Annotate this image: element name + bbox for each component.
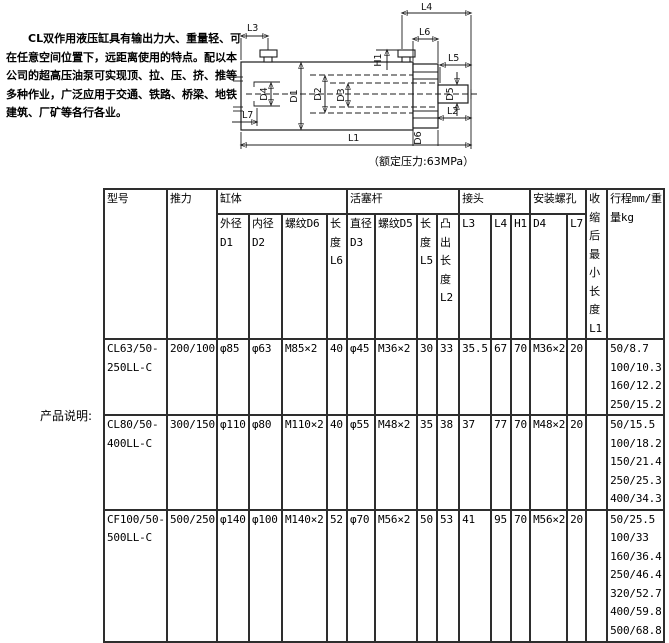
- oil-port-left: [260, 50, 277, 62]
- cell-l3: 35.5: [459, 339, 491, 415]
- cell-h1: 70: [511, 510, 530, 642]
- cell-model: CL80/50-400LL-C: [104, 415, 167, 510]
- cell-l1: [586, 415, 607, 510]
- cell-l2: 33: [437, 339, 459, 415]
- dim-label-l7: L7: [242, 110, 253, 121]
- cell-d3: φ55: [347, 415, 375, 510]
- cell-thread-d5: M56×2: [375, 510, 417, 642]
- gland-collar: [413, 64, 438, 128]
- cell-l6: 52: [327, 510, 347, 642]
- product-description-label: 产品说明:: [40, 407, 92, 424]
- cell-d4: M36×2: [530, 339, 567, 415]
- cell-stroke-weight: 50/8.7 100/10.3 160/12.2 250/15.2: [607, 339, 664, 415]
- cell-d4: M56×2: [530, 510, 567, 642]
- cell-thread-d5: M48×2: [375, 415, 417, 510]
- rated-pressure-note: （额定压力:63MPa）: [368, 153, 474, 169]
- cell-stroke-weight: 50/25.5 100/33 160/36.4 250/46.4 320/52.…: [607, 510, 664, 642]
- cell-thread-d6: M140×2: [282, 510, 327, 642]
- cell-l7: 20: [567, 339, 586, 415]
- oil-port-right: [398, 50, 415, 62]
- header-min-length: 收缩后最小长度L1: [586, 189, 607, 339]
- header-group-mount-holes: 安装螺孔: [530, 189, 586, 214]
- cell-d1: φ140: [217, 510, 249, 642]
- dim-label-d1: D1: [289, 89, 300, 102]
- cell-l3: 41: [459, 510, 491, 642]
- cell-d2: φ63: [249, 339, 282, 415]
- cell-stroke-weight: 50/15.5 100/18.2 150/21.4 250/25.3 400/3…: [607, 415, 664, 510]
- cell-l5: 50: [417, 510, 437, 642]
- dim-label-d4: D4: [259, 87, 270, 100]
- cell-l3: 37: [459, 415, 491, 510]
- cell-l4: 67: [491, 339, 511, 415]
- cell-l7: 20: [567, 510, 586, 642]
- cell-l6: 40: [327, 339, 347, 415]
- header-stroke-weight: 行程mm/重量kg: [607, 189, 664, 339]
- header-d4: D4: [530, 214, 567, 339]
- cell-l4: 77: [491, 415, 511, 510]
- cell-d1: φ85: [217, 339, 249, 415]
- cylinder-technical-drawing: L3 L4 L6 L5 L2 L1 L7 H1 D1 D2 D3 D4 D5 D…: [0, 0, 669, 186]
- dim-label-d5: D5: [445, 87, 456, 100]
- header-l7: L7: [567, 214, 586, 339]
- cell-thrust: 200/100: [167, 339, 217, 415]
- cell-d4: M48×2: [530, 415, 567, 510]
- cell-model: CF100/50-500LL-C: [104, 510, 167, 642]
- header-h1: H1: [511, 214, 530, 339]
- cell-l5: 35: [417, 415, 437, 510]
- cell-l4: 95: [491, 510, 511, 642]
- cell-l2: 53: [437, 510, 459, 642]
- dim-label-l3: L3: [247, 23, 258, 34]
- header-group-cylinder: 缸体: [217, 189, 347, 214]
- cell-thrust: 300/150: [167, 415, 217, 510]
- dim-label-d2: D2: [313, 87, 324, 100]
- table-row: CL80/50-400LL-C 300/150 φ110 φ80 M110×2 …: [104, 415, 664, 510]
- header-length-l6: 长度L6: [327, 214, 347, 339]
- header-length-l5: 长度L5: [417, 214, 437, 339]
- header-model: 型号: [104, 189, 167, 339]
- dim-label-d6: D6: [413, 131, 424, 144]
- table-row: CL63/50-250LL-C 200/100 φ85 φ63 M85×2 40…: [104, 339, 664, 415]
- table-row: CF100/50-500LL-C 500/250 φ140 φ100 M140×…: [104, 510, 664, 642]
- cell-l2: 38: [437, 415, 459, 510]
- cell-d3: φ45: [347, 339, 375, 415]
- dim-label-d3: D3: [336, 88, 347, 101]
- cell-l1: [586, 339, 607, 415]
- cell-l7: 20: [567, 415, 586, 510]
- cell-d2: φ100: [249, 510, 282, 642]
- cell-l1: [586, 510, 607, 642]
- dim-label-l6: L6: [419, 27, 430, 38]
- cell-model: CL63/50-250LL-C: [104, 339, 167, 415]
- dim-label-h1: H1: [373, 53, 384, 66]
- cell-h1: 70: [511, 415, 530, 510]
- cell-l6: 40: [327, 415, 347, 510]
- dim-label-l1: L1: [348, 133, 359, 144]
- dim-label-l4: L4: [421, 2, 432, 13]
- header-group-joint: 接头: [459, 189, 530, 214]
- cell-thread-d6: M110×2: [282, 415, 327, 510]
- cell-d3: φ70: [347, 510, 375, 642]
- header-outer-dia: 外径D1: [217, 214, 249, 339]
- cell-thread-d6: M85×2: [282, 339, 327, 415]
- header-thread-d6: 螺纹D6: [282, 214, 327, 339]
- cell-thread-d5: M36×2: [375, 339, 417, 415]
- dim-label-l2: L2: [447, 106, 458, 117]
- cell-l5: 30: [417, 339, 437, 415]
- cell-d2: φ80: [249, 415, 282, 510]
- header-thrust: 推力: [167, 189, 217, 339]
- spec-table: 型号 推力 缸体 活塞杆 接头 安装螺孔 收缩后最小长度L1 行程mm/重量kg…: [103, 188, 665, 643]
- cell-h1: 70: [511, 339, 530, 415]
- header-protrude-l2: 凸出长度L2: [437, 214, 459, 339]
- header-rod-dia: 直径D3: [347, 214, 375, 339]
- header-inner-dia: 内径D2: [249, 214, 282, 339]
- header-group-piston-rod: 活塞杆: [347, 189, 459, 214]
- header-l3: L3: [459, 214, 491, 339]
- cell-thrust: 500/250: [167, 510, 217, 642]
- header-l4: L4: [491, 214, 511, 339]
- cell-d1: φ110: [217, 415, 249, 510]
- page: { "intro": { "text": "CL双作用液压缸具有输出力大、重量轻…: [0, 0, 669, 635]
- dim-label-l5: L5: [448, 53, 459, 64]
- header-thread-d5: 螺纹D5: [375, 214, 417, 339]
